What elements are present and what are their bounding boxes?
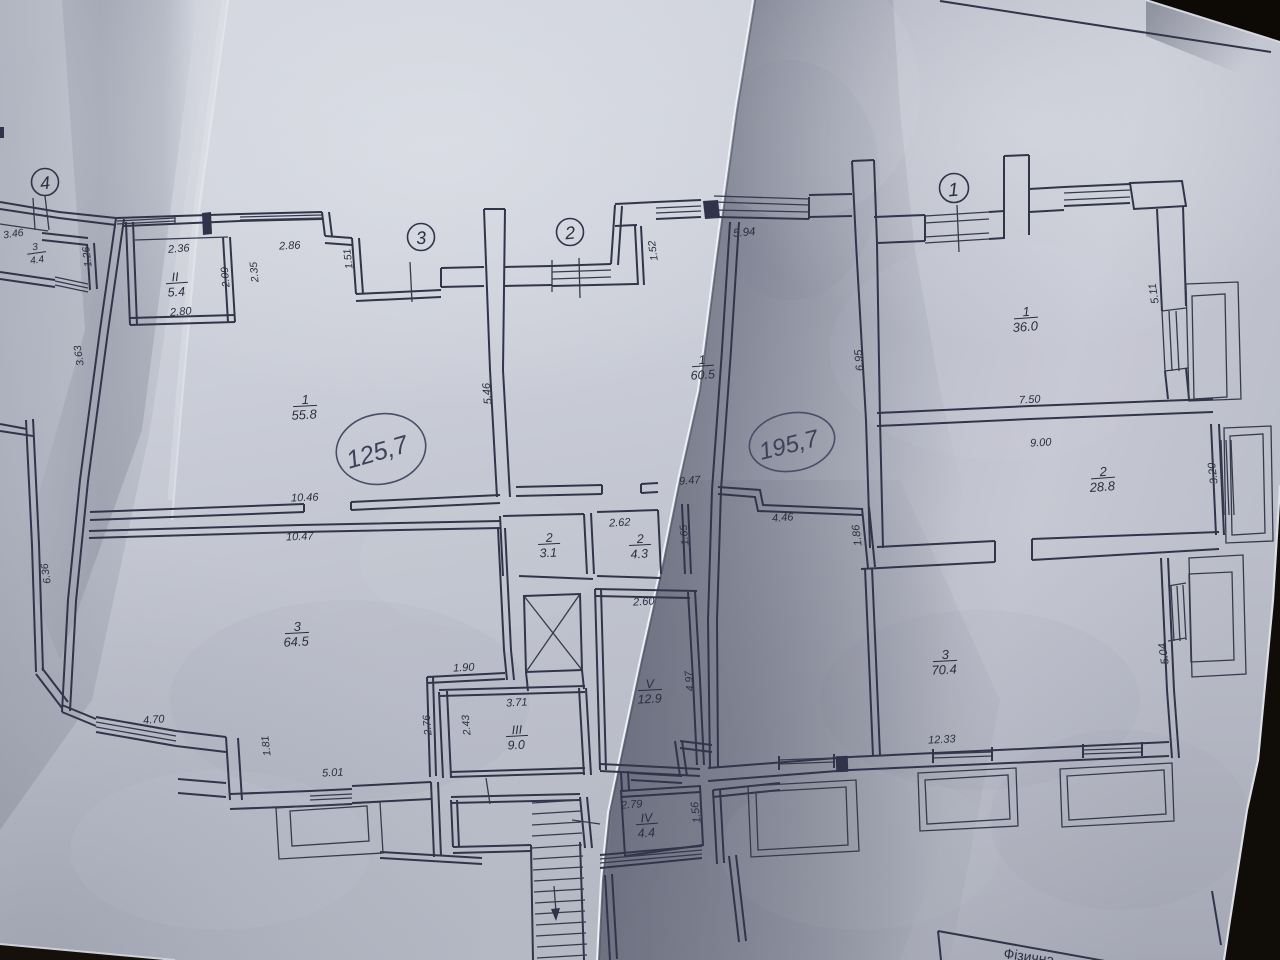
svg-text:2.62: 2.62 [608,516,631,529]
svg-text:2.09: 2.09 [219,266,233,289]
svg-text:2.80: 2.80 [169,305,193,319]
svg-text:2.86: 2.86 [278,239,302,252]
svg-text:7.50: 7.50 [1019,393,1042,406]
svg-text:4.4: 4.4 [637,825,655,840]
svg-text:4: 4 [39,173,51,194]
svg-text:64.5: 64.5 [283,633,310,649]
svg-text:3: 3 [415,228,427,249]
svg-text:4.3: 4.3 [630,547,648,562]
svg-text:3.71: 3.71 [506,696,528,709]
svg-text:70.4: 70.4 [931,661,957,677]
svg-text:9.00: 9.00 [1030,436,1053,449]
svg-text:1: 1 [698,353,706,367]
svg-text:III: III [511,723,523,738]
svg-text:9.0: 9.0 [507,738,525,753]
svg-text:2.43: 2.43 [460,714,474,737]
svg-text:28.8: 28.8 [1088,478,1116,495]
svg-text:5.4: 5.4 [167,284,185,299]
svg-text:12.9: 12.9 [637,691,662,706]
svg-text:4.46: 4.46 [772,511,795,525]
svg-text:1: 1 [1022,304,1030,319]
svg-text:1.81: 1.81 [259,735,273,757]
svg-text:2: 2 [635,532,644,546]
svg-text:2: 2 [544,531,553,545]
svg-text:1: 1 [947,180,959,202]
svg-text:2.35: 2.35 [248,261,262,284]
svg-text:1.65: 1.65 [678,524,692,546]
svg-text:2.36: 2.36 [167,242,191,256]
svg-text:5.46: 5.46 [481,382,495,405]
svg-text:60.5: 60.5 [690,367,715,383]
svg-text:4.97: 4.97 [683,669,697,692]
svg-text:2.76: 2.76 [421,714,435,737]
svg-text:5.01: 5.01 [322,767,344,780]
svg-text:9.47: 9.47 [679,474,702,488]
svg-text:10.46: 10.46 [291,492,320,505]
svg-text:3.1: 3.1 [539,546,557,561]
svg-text:10.47: 10.47 [286,531,315,544]
svg-text:1.26: 1.26 [80,246,94,268]
svg-text:1: 1 [301,392,309,407]
svg-text:12.33: 12.33 [928,733,957,746]
svg-text:2.79: 2.79 [620,798,643,812]
svg-text:55.8: 55.8 [291,406,318,422]
svg-text:4.4: 4.4 [29,254,45,267]
svg-text:1.51: 1.51 [341,248,355,270]
svg-text:2: 2 [563,223,576,244]
svg-text:4.70: 4.70 [143,713,166,727]
svg-text:1.90: 1.90 [453,661,476,674]
svg-text:36.0: 36.0 [1012,318,1039,335]
svg-text:2.60: 2.60 [632,595,656,608]
svg-text:6.95: 6.95 [853,348,867,371]
svg-text:5.94: 5.94 [733,226,756,240]
